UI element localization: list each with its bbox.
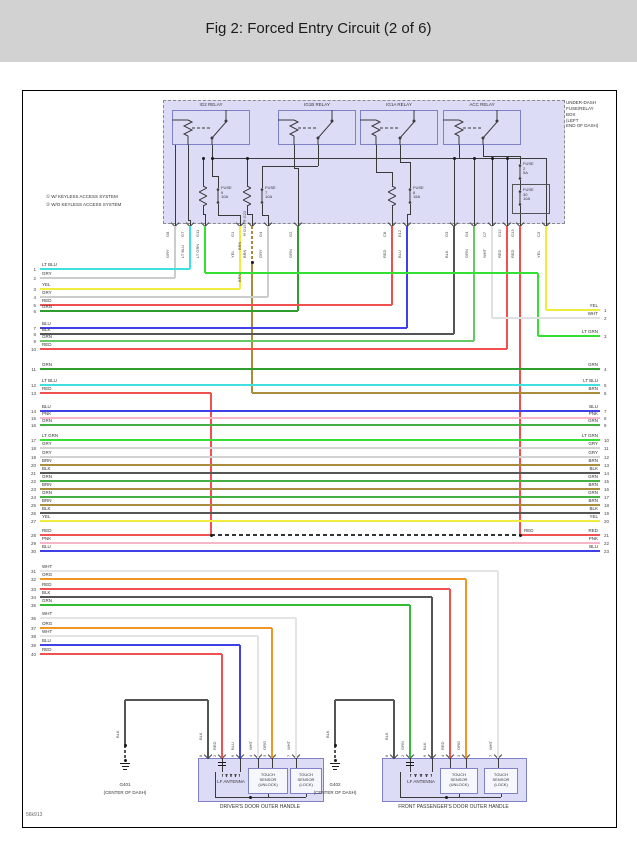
- wire-number-right: 6: [604, 391, 607, 396]
- wire-number-left: 32: [22, 577, 36, 582]
- wire-segment: [215, 772, 216, 797]
- wire-color-label-right: BLU: [538, 404, 598, 409]
- fuse-label: FUSE910A: [221, 186, 232, 200]
- wire-segment: [335, 699, 394, 700]
- wire-segment: [40, 570, 498, 571]
- wire-number-left: 31: [22, 569, 36, 574]
- wire-number-left: 28: [22, 533, 36, 538]
- relay-box-wire: [483, 156, 520, 157]
- relay-box-wire: [218, 204, 219, 215]
- wire-segment: [204, 226, 205, 273]
- wire-segment: [40, 588, 450, 589]
- fuse-relay-box-label: UNDER-DASHFUSE/RELAYBOX(LEFTEND OF DASH): [566, 100, 598, 129]
- wire-segment: [40, 296, 268, 297]
- wire-segment: [40, 340, 474, 341]
- wire-segment: [409, 605, 411, 758]
- wire-color-label: GRN: [42, 490, 52, 495]
- wire-color-label: [199, 716, 208, 750]
- wire-number-right: 19: [604, 511, 609, 516]
- wire-number-left: 26: [22, 511, 36, 516]
- wire-segment: [449, 589, 450, 758]
- wire-segment: [431, 597, 433, 758]
- wire-segment: [334, 745, 335, 760]
- wire-color-label: BRN: [238, 236, 247, 250]
- wire-segment: [545, 226, 546, 310]
- wire-segment: [466, 758, 467, 768]
- wire-segment: [498, 758, 499, 768]
- wire-color-label: GRN: [42, 362, 52, 367]
- wire-number-left: 17: [22, 438, 36, 443]
- wire-segment: [492, 317, 600, 318]
- junction-dot: [506, 157, 509, 160]
- wire-segment: [271, 628, 272, 758]
- wire-number-left: 35: [22, 603, 36, 608]
- wire-segment: [40, 617, 296, 618]
- wire-segment: [221, 654, 223, 758]
- relay-box-wire: [400, 162, 410, 163]
- wire-segment: [40, 496, 600, 497]
- wire-segment: [40, 578, 466, 579]
- wire-number-left: 9: [22, 339, 36, 344]
- wire-number-left: 8: [22, 332, 36, 337]
- wire-segment: [40, 550, 600, 551]
- ground-icon: [122, 766, 129, 767]
- door-handle-caption: FRONT PASSENGER'S DOOR OUTER HANDLE: [354, 804, 554, 810]
- wire-color-label: RED: [42, 386, 52, 391]
- junction-dot: [124, 759, 127, 762]
- wire-number-left: 15: [22, 416, 36, 421]
- wire-segment: [40, 512, 600, 513]
- wire-number-left: 30: [22, 549, 36, 554]
- wire-number-right: 2: [604, 316, 607, 321]
- wire-color-label: WHT: [42, 611, 52, 616]
- wire-segment: [215, 797, 306, 798]
- wire-color-label-right: GRN: [538, 418, 598, 423]
- wire-segment: [40, 635, 258, 636]
- wire-color-label-right: BRN: [538, 386, 598, 391]
- wire-number-left: 20: [22, 463, 36, 468]
- wire-number-right: 16: [604, 487, 609, 492]
- wire-segment: [40, 653, 222, 655]
- fuse-label: FUSE25A: [523, 162, 534, 176]
- wire-segment: [267, 226, 268, 297]
- wire-color-label: WHT: [42, 564, 52, 569]
- wire-color-label: RED: [42, 298, 52, 303]
- relay-box-wire: [188, 145, 189, 220]
- wire-number-right: 15: [604, 479, 609, 484]
- wire-segment: [506, 226, 507, 349]
- wire-color-label-right: LT BLU: [538, 378, 598, 383]
- capacitor-icon: [406, 762, 414, 763]
- relay-box-wire: [400, 145, 401, 162]
- wire-color-label-right: LT GRN: [538, 329, 598, 334]
- fuse-relay-box-label-line: UNDER-DASH: [566, 100, 598, 106]
- wire-number-right: 12: [604, 455, 609, 460]
- coil-resistor-icon: [243, 186, 251, 206]
- junction-dot: [246, 157, 249, 160]
- junction-dot: [251, 261, 254, 264]
- wire-number-left: 13: [22, 391, 36, 396]
- ground-name: G402: [315, 782, 355, 787]
- wire-segment: [258, 758, 259, 768]
- wire-color-label: BLU: [42, 321, 51, 326]
- wire-color-label: BLU: [42, 404, 51, 409]
- wire-number-right: 3: [604, 334, 607, 339]
- wire-segment: [296, 758, 297, 768]
- ground-icon: [120, 763, 130, 764]
- figure-title: Fig 2: Forced Entry Circuit (2 of 6): [0, 20, 637, 37]
- wire-color-label: BLK: [42, 590, 51, 595]
- coil-resistor-icon: [388, 186, 396, 206]
- ground-icon: [123, 769, 127, 770]
- touch-sensor-box: TOUCHSENSOR(UNLOCK): [248, 768, 288, 794]
- wire-segment: [40, 542, 600, 543]
- junction-dot: [334, 744, 337, 747]
- wire-segment: [40, 520, 600, 521]
- wire-number-right: 17: [604, 495, 609, 500]
- door-handle-caption: DRIVER'S DOOR OUTER HANDLE: [160, 804, 360, 810]
- wire-segment: [40, 464, 600, 465]
- coil-resistor-icon: [199, 186, 207, 206]
- wire-color-label: GRN: [42, 334, 52, 339]
- wire-color-label: GRN: [42, 304, 52, 309]
- junction-dot: [519, 534, 522, 537]
- wire-number-left: 1: [22, 267, 36, 272]
- wire-color-label: BLK: [42, 506, 51, 511]
- ground-icon: [333, 769, 337, 770]
- wire-color-label: YEL: [42, 282, 51, 287]
- wire-color-label-right: BLU: [538, 544, 598, 549]
- wire-number-right: 20: [604, 519, 609, 524]
- wire-number-left: 40: [22, 652, 36, 657]
- wire-color-label: PNK: [42, 536, 51, 541]
- wire-segment: [400, 797, 501, 798]
- junction-dot: [124, 744, 127, 747]
- wire-color-label-right: BLK: [538, 506, 598, 511]
- wire-number-right: 18: [604, 503, 609, 508]
- keyless-note-line: ② W/O KEYLESS ACCESS SYSTEM: [46, 201, 121, 209]
- junction-dot: [202, 157, 205, 160]
- pin-number-label: 8: [199, 748, 208, 757]
- wire-number-left: 24: [22, 495, 36, 500]
- relay-box-wire: [262, 166, 263, 188]
- relay-box-wire: [376, 145, 377, 172]
- wire-number-left: 25: [22, 503, 36, 508]
- wire-color-label: RED: [42, 647, 52, 652]
- wire-segment: [40, 348, 507, 349]
- fuse-label-line: 15A: [413, 195, 424, 200]
- wire-color-label: RED: [42, 342, 52, 347]
- wire-color-label: BLK: [326, 716, 335, 738]
- wire-number-right: 22: [604, 541, 609, 546]
- wire-number-left: 34: [22, 595, 36, 600]
- junction-dot: [210, 534, 213, 537]
- wiring-diagram-figure: Fig 2: Forced Entry Circuit (2 of 6) UND…: [0, 0, 637, 846]
- wire-number-right: 10: [604, 438, 609, 443]
- junction-dot: [211, 157, 214, 160]
- junction-dot: [473, 157, 476, 160]
- wire-color-label-right: GRY: [538, 441, 598, 446]
- wire-number-right: 11: [604, 446, 609, 451]
- fuse-label-line: 10A: [523, 197, 534, 202]
- wire-segment: [40, 410, 600, 411]
- relay-label: IG1A RELAY: [360, 102, 438, 107]
- wire-segment: [450, 758, 451, 768]
- wire-color-label: GRN: [42, 474, 52, 479]
- wire-color-label: LT BLU: [42, 378, 57, 383]
- wire-number-left: 14: [22, 409, 36, 414]
- wire-color-label: RED: [42, 582, 52, 587]
- wire-number-left: 5: [22, 303, 36, 308]
- wire-segment: [251, 226, 252, 262]
- wire-segment: [40, 304, 392, 305]
- wire-number-left: 16: [22, 423, 36, 428]
- wire-segment: [465, 579, 466, 758]
- wire-color-label: BRN: [42, 458, 52, 463]
- fuse-relay-box-label-line: END OF DASH): [566, 123, 598, 129]
- wire-segment: [174, 226, 175, 278]
- wire-segment: [211, 534, 520, 536]
- fuse-label-line: 10A: [221, 195, 232, 200]
- wire-color-label: BLK: [42, 466, 51, 471]
- wire-number-left: 23: [22, 487, 36, 492]
- wire-number-left: 18: [22, 446, 36, 451]
- wire-color-label-right: GRN: [538, 474, 598, 479]
- relay-symbol: [172, 110, 250, 145]
- wire-color-label: BRN: [238, 268, 247, 282]
- wire-color-label-right: GRY: [538, 450, 598, 455]
- wire-segment: [239, 645, 241, 758]
- wire-segment: [391, 226, 392, 305]
- capacitor-icon: [218, 765, 226, 766]
- relay-box-wire: [247, 158, 248, 186]
- wire-segment: [125, 699, 208, 700]
- ground-location: (CENTER OF DASH): [300, 790, 370, 795]
- relay-symbol: [278, 110, 356, 145]
- wire-color-label: GRY: [42, 450, 52, 455]
- wire-color-label: ORG: [42, 621, 52, 626]
- wire-color-label-right: GRN: [538, 362, 598, 367]
- relay-box-wire: [218, 215, 240, 216]
- wire-color-label: YEL: [42, 514, 51, 519]
- wire-color-label: WHT: [42, 629, 52, 634]
- wire-number-right: 8: [604, 416, 607, 421]
- wire-color-label: GRN: [42, 418, 52, 423]
- wire-color-label: PNK: [42, 411, 51, 416]
- wire-number-left: 10: [22, 347, 36, 352]
- wire-number-left: 11: [22, 367, 36, 372]
- wire-color-label-right: PNK: [538, 536, 598, 541]
- wire-color-label-mid: RED: [524, 528, 534, 533]
- wire-number-left: 4: [22, 295, 36, 300]
- fuse-label: FUSE815A: [413, 186, 424, 200]
- wire-color-label: ORG: [42, 572, 52, 577]
- touch-sensor-label-line: (UNLOCK): [441, 782, 477, 787]
- wire-number-right: 1: [604, 308, 607, 313]
- wire-color-label-right: PNK: [538, 411, 598, 416]
- wire-color-label: GRY: [42, 271, 52, 276]
- capacitor-icon: [406, 765, 414, 766]
- wire-segment: [406, 226, 407, 328]
- touch-sensor-label-line: (UNLOCK): [249, 782, 287, 787]
- wire-segment: [520, 534, 600, 535]
- wire-number-right: 4: [604, 367, 607, 372]
- junction-dot: [334, 759, 337, 762]
- junction-dot: [453, 157, 456, 160]
- junction-dot: [491, 157, 494, 160]
- keyless-access-notes: ① W/ KEYLESS ACCESS SYSTEM② W/O KEYLESS …: [46, 193, 121, 209]
- wire-segment: [40, 534, 211, 535]
- ground-name: G401: [105, 782, 145, 787]
- wire-segment: [40, 447, 600, 448]
- wire-segment: [189, 226, 190, 269]
- wire-segment: [40, 644, 240, 646]
- ground-location: (CENTER OF DASH): [90, 790, 160, 795]
- wire-number-left: 2: [22, 276, 36, 281]
- wire-color-label: LT BLU: [42, 262, 57, 267]
- relay-box-wire: [203, 158, 204, 186]
- wire-segment: [40, 604, 410, 605]
- wire-number-right: 7: [604, 409, 607, 414]
- antenna-coil-icon: [410, 769, 432, 777]
- wire-color-label-right: BRN: [538, 458, 598, 463]
- wire-color-label: GRY: [42, 290, 52, 295]
- wire-color-label: BLU: [42, 638, 51, 643]
- wire-color-label-right: GRN: [538, 490, 598, 495]
- relay-box-wire: [294, 145, 295, 168]
- wire-segment: [40, 439, 600, 440]
- touch-sensor-box: TOUCHSENSOR(UNLOCK): [440, 768, 478, 794]
- fuse-label: FUSE3010A: [523, 188, 534, 202]
- relay-box-wire: [212, 145, 213, 176]
- wire-segment: [400, 772, 401, 797]
- wire-color-label: [385, 716, 394, 750]
- ground-icon: [330, 763, 340, 764]
- wire-segment: [40, 327, 407, 328]
- wire-color-label: BLK: [42, 327, 51, 332]
- wire-number-left: 19: [22, 455, 36, 460]
- wire-color-label-right: BRN: [538, 482, 598, 487]
- wire-number-left: 36: [22, 616, 36, 621]
- keyless-note-line: ① W/ KEYLESS ACCESS SYSTEM: [46, 193, 121, 201]
- wire-color-label-right: YEL: [538, 303, 598, 308]
- wire-segment: [252, 392, 600, 393]
- capacitor-icon: [218, 762, 226, 763]
- wire-segment: [40, 504, 600, 505]
- fuse-label-line: 10A: [265, 195, 276, 200]
- wire-segment: [40, 392, 211, 393]
- relay-box-wire: [175, 145, 176, 228]
- relay-box-wire: [212, 158, 546, 159]
- wire-segment: [124, 745, 125, 760]
- wire-color-label-right: WHT: [538, 311, 598, 316]
- relay-box-wire: [407, 214, 411, 215]
- fuse-label: FUSE710A: [265, 186, 276, 200]
- relay-box-wire: [318, 145, 319, 166]
- wire-segment: [453, 226, 454, 334]
- wire-color-label: RED: [42, 528, 52, 533]
- fuse-label-line: 5A: [523, 171, 534, 176]
- wire-segment: [297, 226, 298, 311]
- wire-segment: [205, 272, 538, 273]
- relay-symbol: [360, 110, 438, 145]
- wire-segment: [40, 288, 240, 289]
- wire-segment: [272, 758, 273, 768]
- wire-color-label: GRY: [42, 441, 52, 446]
- wire-number-left: 12: [22, 383, 36, 388]
- wire-number-right: 14: [604, 471, 609, 476]
- relay-box-wire: [262, 166, 318, 167]
- wire-segment: [40, 268, 190, 269]
- diagram-id: 56k913: [26, 812, 42, 818]
- wire-number-right: 13: [604, 463, 609, 468]
- wire-color-label: LT GRN: [42, 433, 58, 438]
- wire-segment: [40, 480, 600, 481]
- antenna-coil-icon: [222, 769, 240, 777]
- wire-segment: [40, 424, 600, 425]
- relay-box-wire: [410, 162, 411, 188]
- wire-color-label-right: YEL: [538, 514, 598, 519]
- junction-dot: [249, 796, 252, 799]
- wire-segment: [295, 618, 296, 758]
- wire-color-label-right: BLK: [538, 466, 598, 471]
- pin-number-label: 8: [385, 748, 394, 757]
- wire-number-right: 21: [604, 533, 609, 538]
- relay-label: IG1B RELAY: [278, 102, 356, 107]
- wire-segment: [40, 333, 454, 334]
- wire-segment: [40, 368, 600, 369]
- wire-segment: [40, 310, 298, 311]
- wire-segment: [257, 636, 258, 758]
- wire-segment: [40, 488, 600, 489]
- junction-dot: [445, 796, 448, 799]
- wire-segment: [40, 384, 600, 385]
- relay-box-wire: [376, 172, 392, 173]
- wire-segment: [538, 335, 600, 336]
- relay-box-wire: [483, 145, 484, 156]
- wire-segment: [473, 226, 474, 341]
- ground-icon: [332, 766, 339, 767]
- wire-segment: [40, 417, 600, 418]
- wire-color-label: BRN: [42, 482, 52, 487]
- wire-number-left: 3: [22, 287, 36, 292]
- wire-number-left: 6: [22, 309, 36, 314]
- wire-number-right: 9: [604, 423, 607, 428]
- wire-number-left: 27: [22, 519, 36, 524]
- relay-box-wire: [520, 156, 521, 164]
- relay-label: ACC RELAY: [443, 102, 521, 107]
- touch-sensor-box: TOUCHSENSOR(LOCK): [484, 768, 518, 794]
- wire-color-label-right: LT GRN: [538, 433, 598, 438]
- wire-color-label-right: RED: [538, 528, 598, 533]
- relay-label: IG2 RELAY: [172, 102, 250, 107]
- fuse-relay-box-label-line: FUSE/RELAY: [566, 106, 598, 112]
- relay-box-wire: [262, 204, 263, 215]
- relay-symbol: [443, 110, 521, 145]
- touch-sensor-label-line: (LOCK): [485, 782, 517, 787]
- wire-segment: [40, 627, 272, 628]
- wire-number-left: 21: [22, 471, 36, 476]
- wire-number-right: 23: [604, 549, 609, 554]
- wire-segment: [497, 571, 498, 758]
- wire-color-label-right: BRN: [538, 498, 598, 503]
- wire-number-left: 22: [22, 479, 36, 484]
- wire-segment: [40, 277, 175, 278]
- wire-number-right: 5: [604, 383, 607, 388]
- wire-color-label: BRN: [42, 498, 52, 503]
- wire-color-label: GRN: [42, 598, 52, 603]
- wire-segment: [40, 456, 600, 457]
